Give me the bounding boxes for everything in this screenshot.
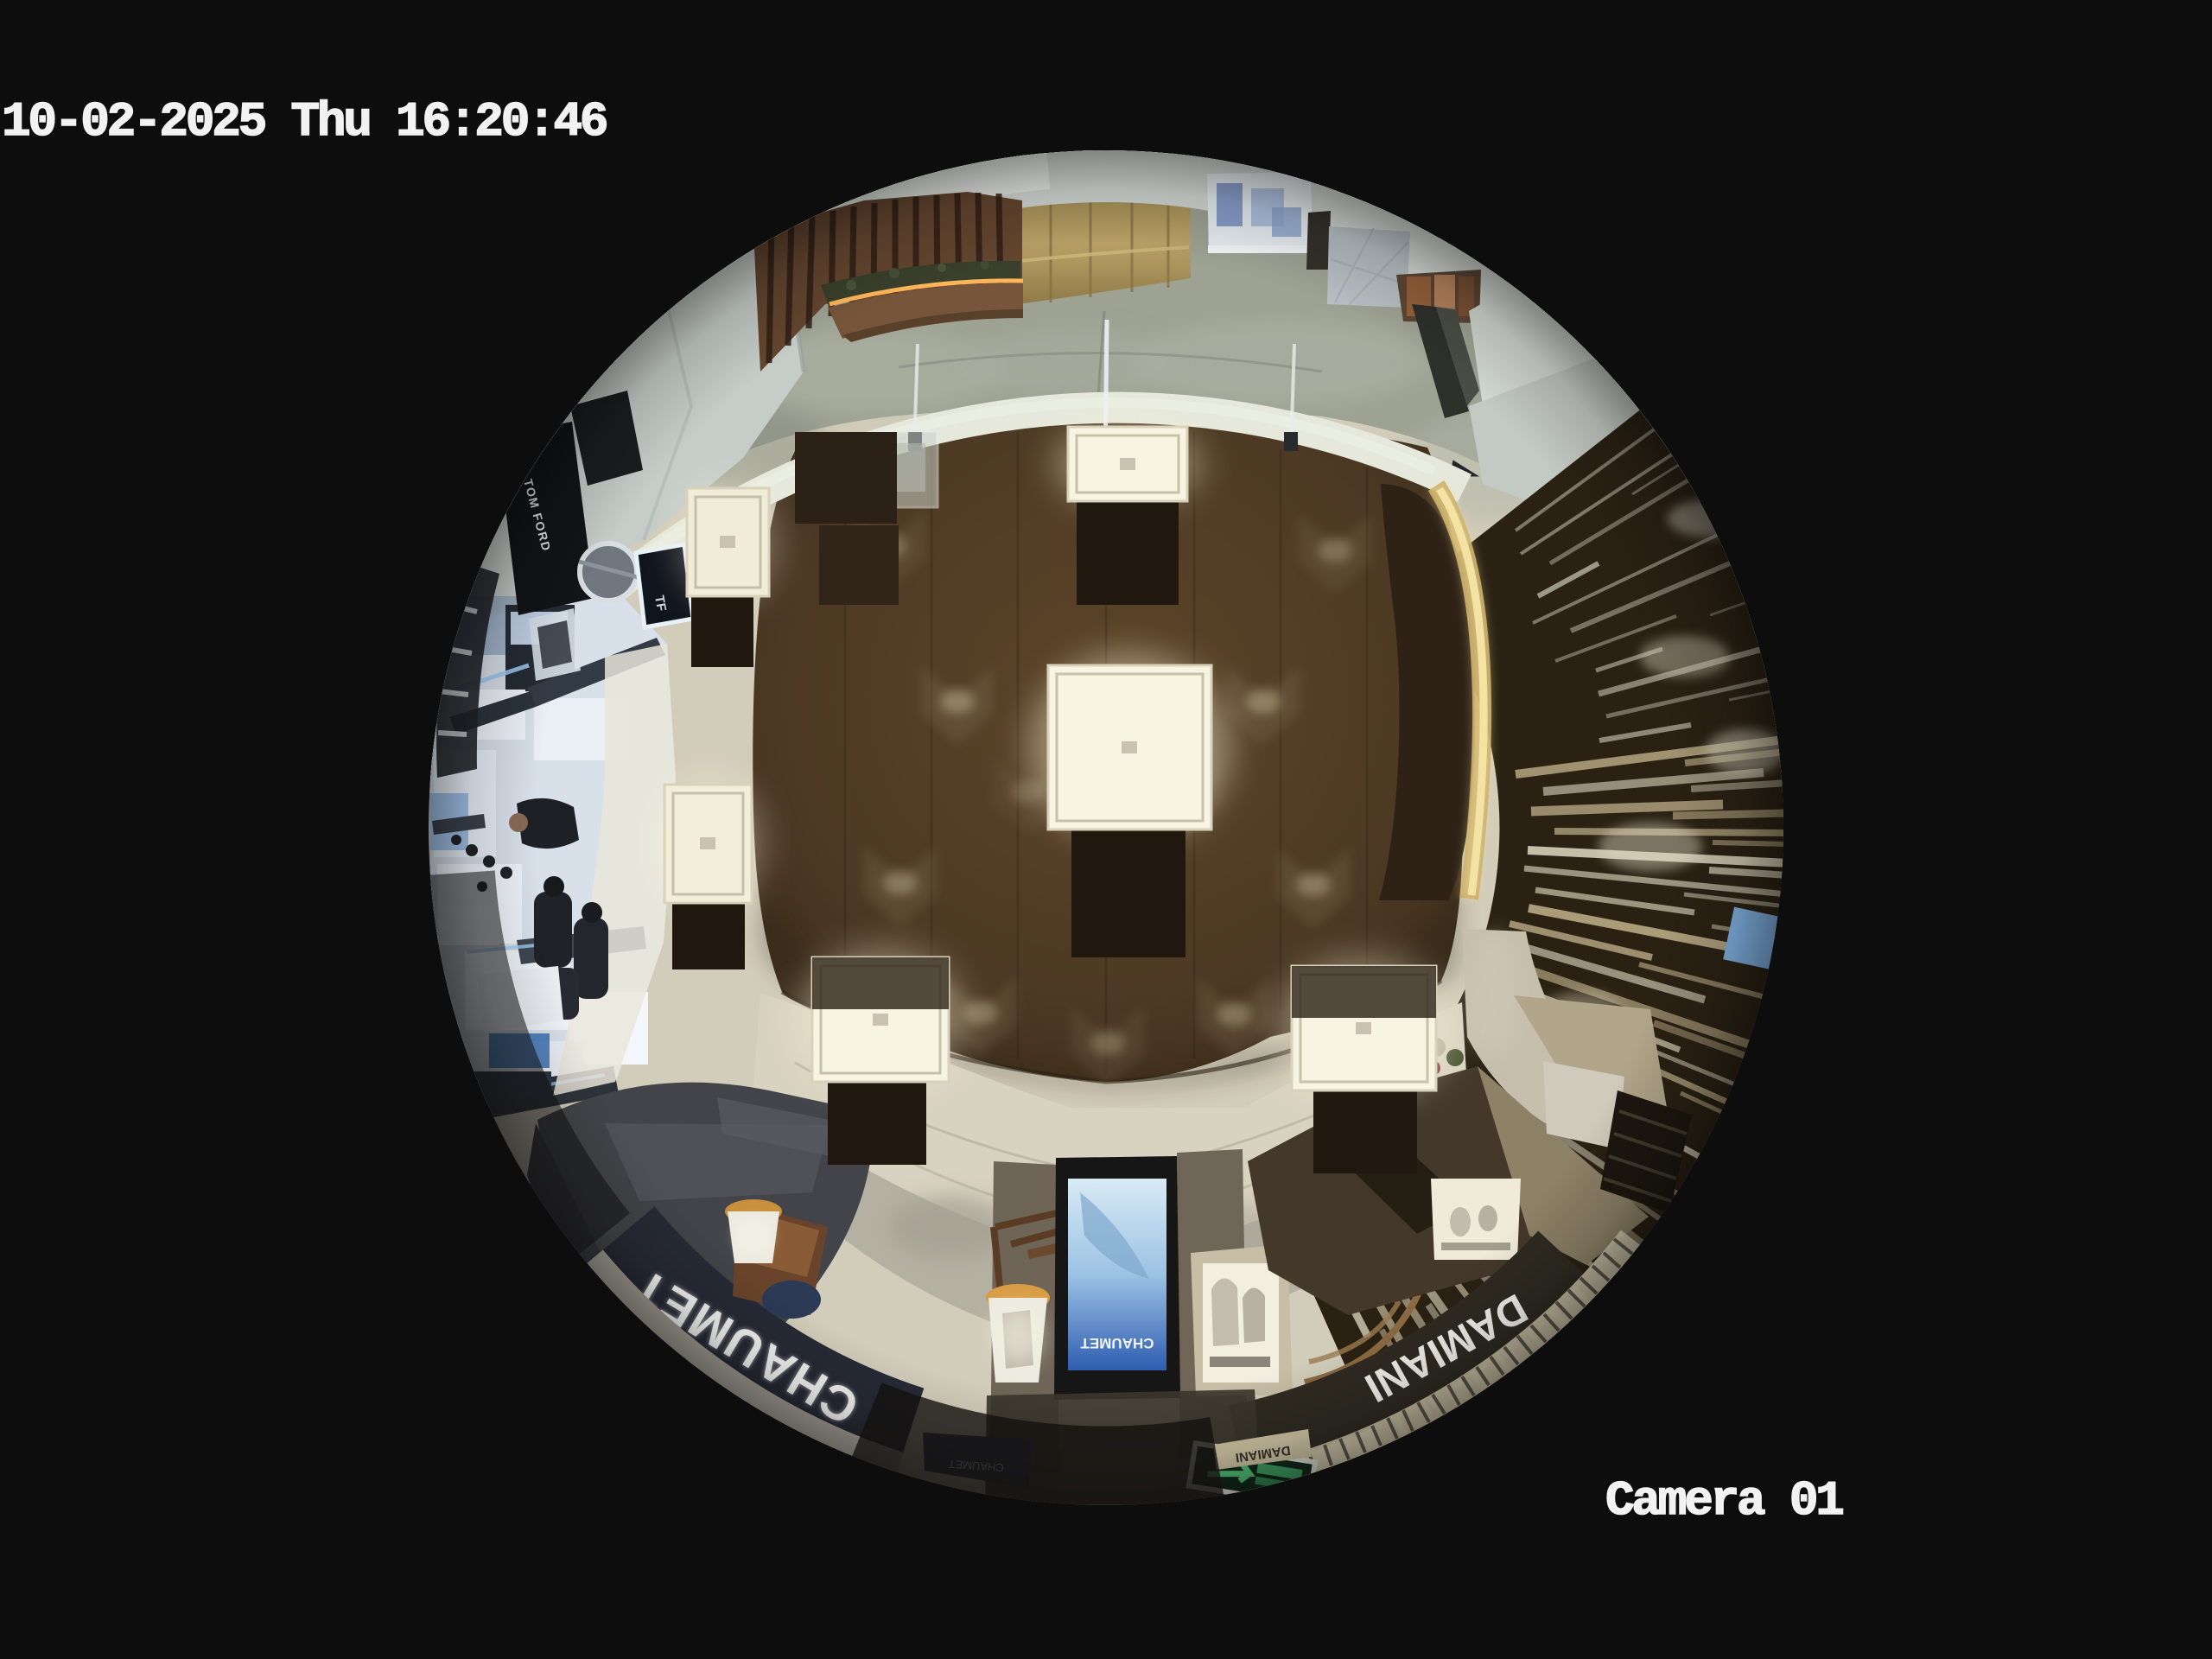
svg-text:Camera 01: Camera 01 [1605,1473,1843,1529]
svg-text:10-02-2025 Thu 16:20:46: 10-02-2025 Thu 16:20:46 [2,94,607,149]
